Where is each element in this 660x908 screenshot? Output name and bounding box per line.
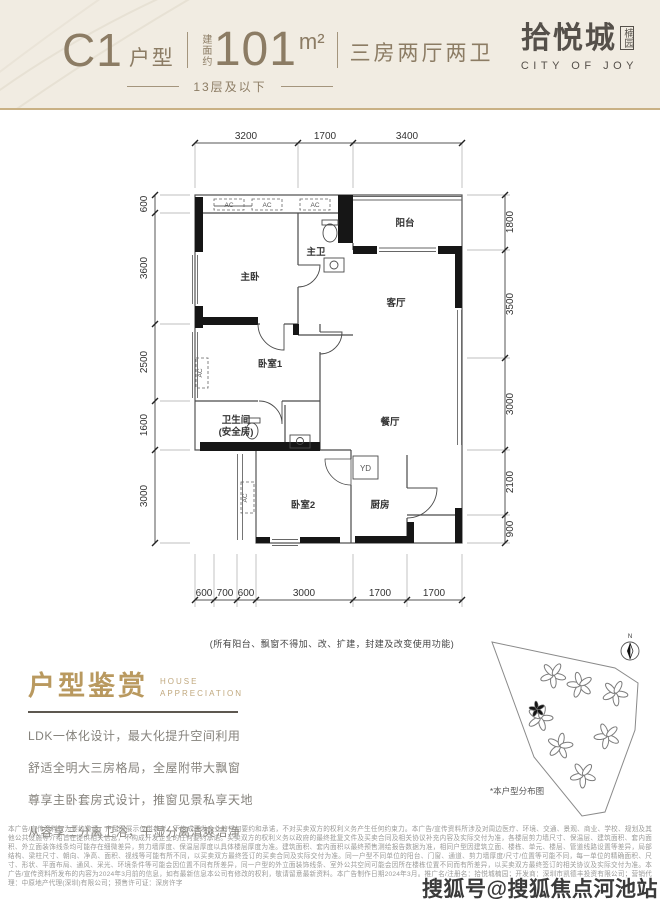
dim-bottom-2: 700 — [217, 588, 234, 599]
unit-type-label: 户型 — [129, 42, 175, 72]
dim-bottom-3: 600 — [238, 588, 255, 599]
appreciation-subtitle: HOUSE APPRECIATION — [160, 676, 243, 700]
feature-item: 尊享主卧套房式设计，推窗见景私享天地 — [28, 783, 288, 815]
dim-top-2: 1700 — [314, 131, 337, 142]
room-bedroom2: 卧室2 — [291, 499, 315, 511]
divider — [337, 32, 338, 68]
room-master-bedroom: 主卧 — [240, 271, 260, 283]
ac-label: AC — [242, 493, 249, 502]
area-value: 101 — [214, 26, 297, 74]
yd-label: YD — [360, 464, 371, 473]
dim-left-2: 3600 — [139, 256, 150, 279]
appreciation-title: 户型鉴赏 — [28, 664, 148, 703]
ac-label: AC — [310, 202, 319, 209]
logo-cn: 拾悦城 — [521, 24, 617, 54]
dim-right-4: 2100 — [505, 470, 516, 493]
room-bedroom1: 卧室1 — [258, 358, 283, 370]
dash-line — [281, 86, 333, 87]
unit-perimeter — [195, 195, 462, 543]
watermark: 搜狐号@搜狐焦点河池站 — [422, 873, 658, 903]
appreciation-subtitle-2: APPRECIATION — [160, 689, 243, 698]
logo-en: CITY OF JOY — [521, 60, 638, 72]
siteplan-svg: N *本户型分布图 — [462, 630, 658, 822]
appreciation-rule — [28, 711, 238, 713]
brand-logo: 拾悦城 楠园 CITY OF JOY — [521, 24, 638, 72]
layout-description: 三房两厅两卫 — [350, 37, 494, 67]
dim-right-1: 1800 — [505, 210, 516, 233]
dim-right-5: 900 — [505, 520, 516, 537]
floor-plan: 3200 1700 3400 600 700 600 3000 1700 170… — [0, 110, 660, 658]
dim-bottom-1: 600 — [196, 588, 213, 599]
dim-right-3: 3000 — [505, 392, 516, 415]
room-living: 客厅 — [385, 297, 406, 309]
header: C1 户型 建面约 101 m² 三房两厅两卫 13层及以下 拾悦城 楠园 CI… — [0, 0, 660, 110]
dim-left-1: 600 — [139, 195, 150, 212]
compass-label: N — [628, 634, 632, 640]
dim-right-2: 3500 — [505, 292, 516, 315]
floor-note-text: 13层及以下 — [193, 78, 266, 95]
appreciation-subtitle-1: HOUSE — [160, 677, 198, 686]
feature-item: LDK一体化设计，最大化提升空间利用 — [28, 719, 288, 751]
dim-top-3: 3400 — [396, 131, 419, 142]
divider — [187, 32, 188, 68]
unit-code: C1 — [62, 27, 123, 73]
plan-note: (所有阳台、飘窗不得加、改、扩建，封建及改变使用功能) — [210, 638, 455, 649]
room-bath2-line2: (安全房) — [219, 426, 254, 438]
dim-left-4: 1600 — [139, 413, 150, 436]
unit-title-row: C1 户型 建面约 101 m² 三房两厅两卫 — [62, 26, 494, 74]
dim-bottom-4: 3000 — [293, 588, 316, 599]
ac-label: AC — [197, 368, 204, 377]
appreciation-section: 户型鉴赏 HOUSE APPRECIATION LDK一体化设计，最大化提升空间… — [28, 664, 288, 847]
dim-left-3: 2500 — [139, 350, 150, 373]
floor-note: 13层及以下 — [0, 78, 460, 95]
dim-bottom-5: 1700 — [369, 588, 392, 599]
feature-item: 舒适全明大三房格局，全屋附带大飘窗 — [28, 751, 288, 783]
ac-label: AC — [262, 202, 271, 209]
siteplan-caption: *本户型分布图 — [490, 786, 544, 796]
compass-icon: N — [621, 634, 639, 660]
ac-label: AC — [224, 202, 233, 209]
area-prefix: 建面约 — [200, 34, 211, 67]
dash-line — [127, 86, 179, 87]
siteplan: N *本户型分布图 — [462, 630, 658, 822]
dim-bottom-6: 1700 — [423, 588, 446, 599]
dim-top-1: 3200 — [235, 131, 258, 142]
area-unit: m² — [299, 29, 325, 55]
room-balcony: 阳台 — [395, 217, 415, 229]
dim-left-5: 3000 — [139, 484, 150, 507]
floor-plan-svg: 3200 1700 3400 600 700 600 3000 1700 170… — [0, 110, 660, 658]
logo-sub: 楠园 — [620, 26, 634, 50]
room-kitchen: 厨房 — [370, 499, 389, 511]
room-dining: 餐厅 — [379, 416, 400, 428]
room-master-bath: 主卫 — [306, 246, 326, 258]
flyer-page: C1 户型 建面约 101 m² 三房两厅两卫 13层及以下 拾悦城 楠园 CI… — [0, 0, 660, 908]
room-bath2-line1: 卫生间 — [222, 414, 251, 426]
